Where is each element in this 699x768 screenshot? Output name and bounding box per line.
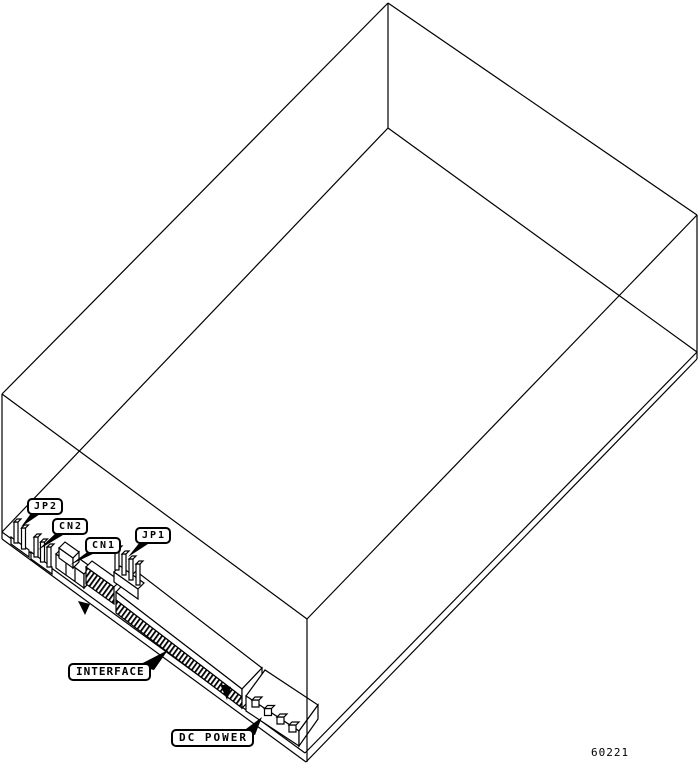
edge-rim-front-right bbox=[306, 359, 697, 762]
edge-top-front-right bbox=[307, 215, 697, 619]
edge-rim-front-left bbox=[2, 539, 306, 762]
edge-hidden-bottom-left bbox=[2, 128, 388, 532]
edge-top-back-left bbox=[2, 3, 388, 394]
chassis-wireframe bbox=[2, 3, 697, 762]
callout-jp1: JP1 bbox=[135, 527, 171, 544]
callout-interface: INTERFACE bbox=[68, 663, 151, 681]
edge-top-back-right bbox=[388, 3, 697, 215]
callout-jp2: JP2 bbox=[27, 498, 63, 515]
jp2-header bbox=[11, 519, 29, 557]
jp1-tail bbox=[128, 542, 151, 557]
callout-cn1: CN1 bbox=[85, 537, 121, 554]
figure-number: 60221 bbox=[591, 746, 629, 759]
drive-isometric-line-art bbox=[0, 0, 699, 768]
technical-drawing-canvas: JP2 CN2 CN1 JP1 INTERFACE DC POWER 60221 bbox=[0, 0, 699, 768]
callout-dc-power: DC POWER bbox=[171, 729, 254, 747]
callout-cn2: CN2 bbox=[52, 518, 88, 535]
edge-bottom-front-right bbox=[305, 352, 697, 753]
interface-pin1-arrow bbox=[78, 601, 90, 615]
edge-hidden-bottom-right bbox=[388, 128, 697, 352]
